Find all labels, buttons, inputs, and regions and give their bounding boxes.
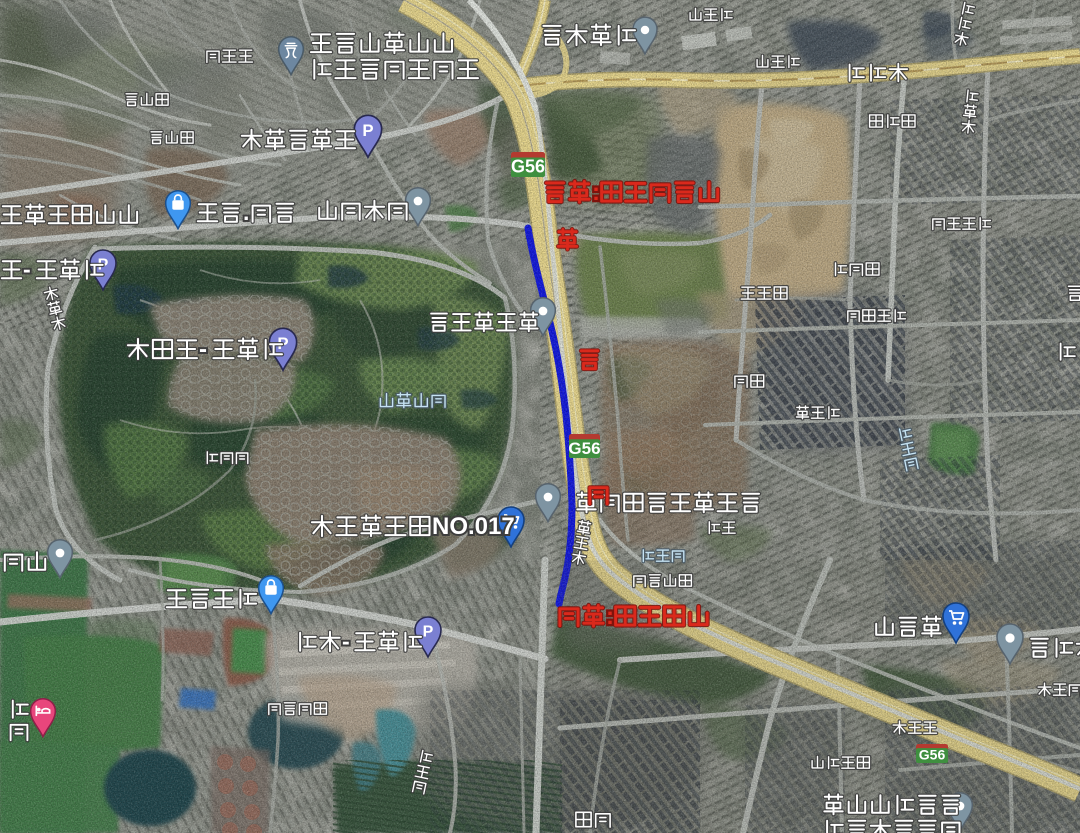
svg-text:G56: G56 xyxy=(511,157,545,177)
svg-text:P: P xyxy=(362,121,373,140)
svg-text:G56: G56 xyxy=(568,439,600,458)
svg-text:G56: G56 xyxy=(919,747,946,763)
svg-text:-: - xyxy=(23,256,31,282)
svg-text:.: . xyxy=(243,199,249,225)
svg-text::: : xyxy=(592,179,600,206)
svg-text:-: - xyxy=(342,628,350,654)
svg-text:NO.017: NO.017 xyxy=(432,513,515,540)
svg-text:-: - xyxy=(199,336,207,363)
svg-text:P: P xyxy=(423,624,434,641)
svg-text::: : xyxy=(606,603,614,630)
